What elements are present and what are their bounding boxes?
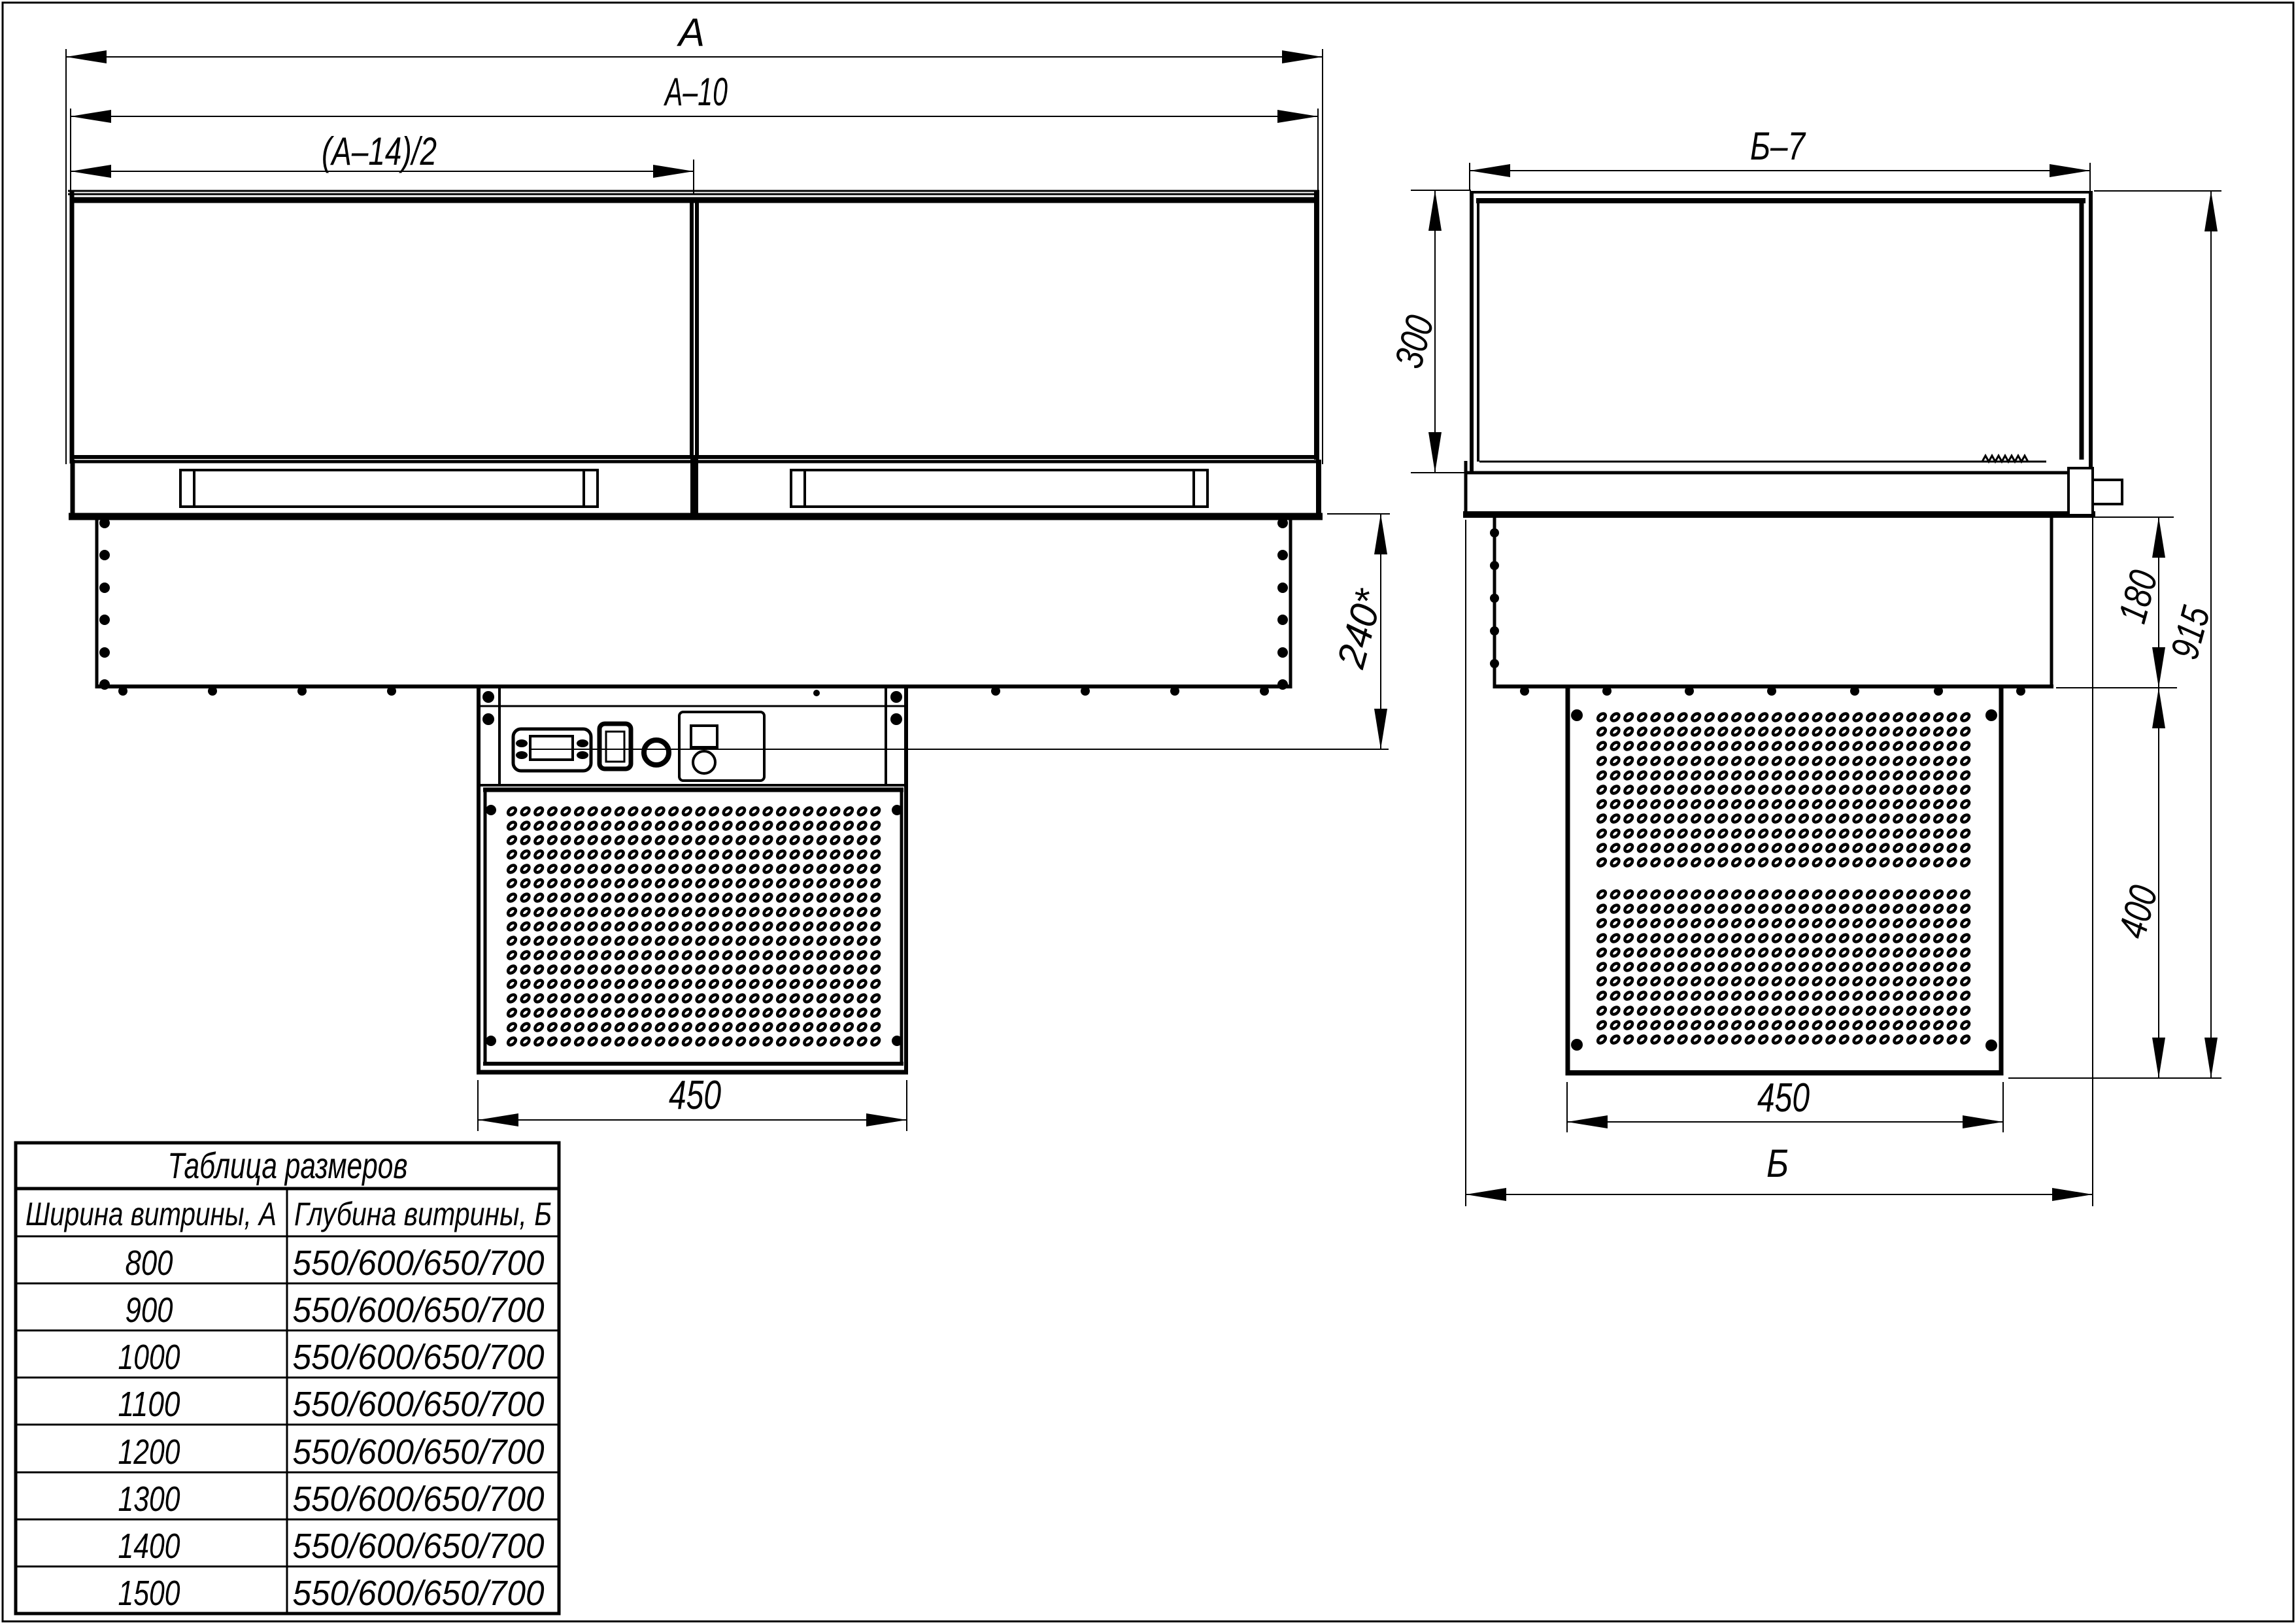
svg-text:1400: 1400 — [118, 1527, 180, 1566]
svg-text:1300: 1300 — [118, 1480, 180, 1519]
svg-text:А–10: А–10 — [664, 70, 728, 114]
svg-text:1000: 1000 — [118, 1338, 180, 1377]
svg-text:450: 450 — [669, 1073, 721, 1118]
svg-text:550/600/650/700: 550/600/650/700 — [293, 1291, 545, 1330]
svg-text:1100: 1100 — [118, 1385, 180, 1424]
svg-text:450: 450 — [1757, 1075, 1810, 1121]
svg-text:550/600/650/700: 550/600/650/700 — [293, 1243, 545, 1283]
svg-text:Ширина витрины, А: Ширина витрины, А — [25, 1196, 277, 1232]
svg-text:1200: 1200 — [118, 1432, 180, 1472]
svg-text:550/600/650/700: 550/600/650/700 — [293, 1480, 545, 1519]
svg-text:Б–7: Б–7 — [1750, 124, 1806, 168]
svg-text:900: 900 — [126, 1291, 173, 1330]
svg-text:550/600/650/700: 550/600/650/700 — [293, 1574, 545, 1613]
svg-text:А: А — [677, 10, 705, 54]
svg-text:800: 800 — [126, 1243, 173, 1283]
svg-text:Глубина витрины, Б: Глубина витрины, Б — [294, 1196, 552, 1232]
svg-text:Таблица размеров: Таблица размеров — [168, 1145, 408, 1186]
svg-text:550/600/650/700: 550/600/650/700 — [293, 1432, 545, 1472]
svg-text:550/600/650/700: 550/600/650/700 — [293, 1338, 545, 1377]
svg-text:550/600/650/700: 550/600/650/700 — [293, 1385, 545, 1424]
svg-text:550/600/650/700: 550/600/650/700 — [293, 1527, 545, 1566]
svg-text:1500: 1500 — [118, 1574, 180, 1613]
svg-text:(А–14)/2: (А–14)/2 — [322, 129, 437, 173]
svg-text:Б: Б — [1766, 1142, 1789, 1185]
